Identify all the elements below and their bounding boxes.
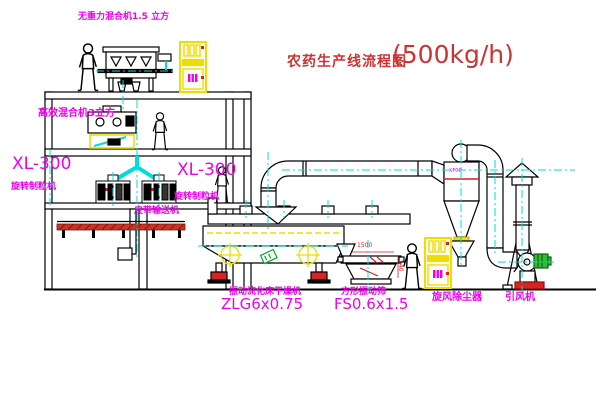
- label-belt-conveyor: 皮带输送机: [134, 207, 179, 216]
- label-screen-model: FS0.6x1.5: [334, 297, 408, 312]
- belt-conveyor: [57, 222, 185, 239]
- label-granulator-left-model: XL-300: [12, 156, 71, 173]
- feed-duct-y: [113, 156, 159, 181]
- dimension-screen-height: 540: [397, 260, 403, 271]
- label-granulator-right-name: 旋转制粒机: [174, 193, 219, 202]
- person-figure-second-floor: [152, 113, 168, 150]
- label-dryer-model: ZLG6x0.75: [221, 297, 303, 312]
- zero-gravity-mixer: [98, 47, 172, 91]
- dimension-screen-width: 1500: [357, 243, 372, 249]
- control-cabinet-upper: [180, 42, 206, 92]
- diagram-canvas: 无重力混合机1.5 立方 农药生产线流程图 (500kg/h) 高效混合机3立方…: [0, 0, 600, 403]
- person-figure-ground: [402, 244, 421, 288]
- cyclone-marking: XF00: [449, 169, 462, 174]
- label-granulator-left-name: 旋转制粒机: [11, 183, 56, 192]
- person-figure-top-floor: [78, 44, 98, 90]
- label-fan: 引风机: [505, 293, 535, 303]
- vibrating-screen: [337, 244, 404, 284]
- label-zero-gravity-mixer: 无重力混合机1.5 立方: [78, 13, 169, 22]
- page-title: 农药生产线流程图: [287, 55, 407, 69]
- control-cabinet-lower: [425, 238, 451, 288]
- title-capacity: (500kg/h): [392, 42, 514, 67]
- induced-draft-fan: [515, 253, 551, 289]
- label-high-efficiency-mixer: 高效混合机3立方: [38, 109, 115, 119]
- label-granulator-right-model: XL-300: [177, 162, 236, 179]
- label-cyclone: 旋风除尘器: [432, 293, 482, 303]
